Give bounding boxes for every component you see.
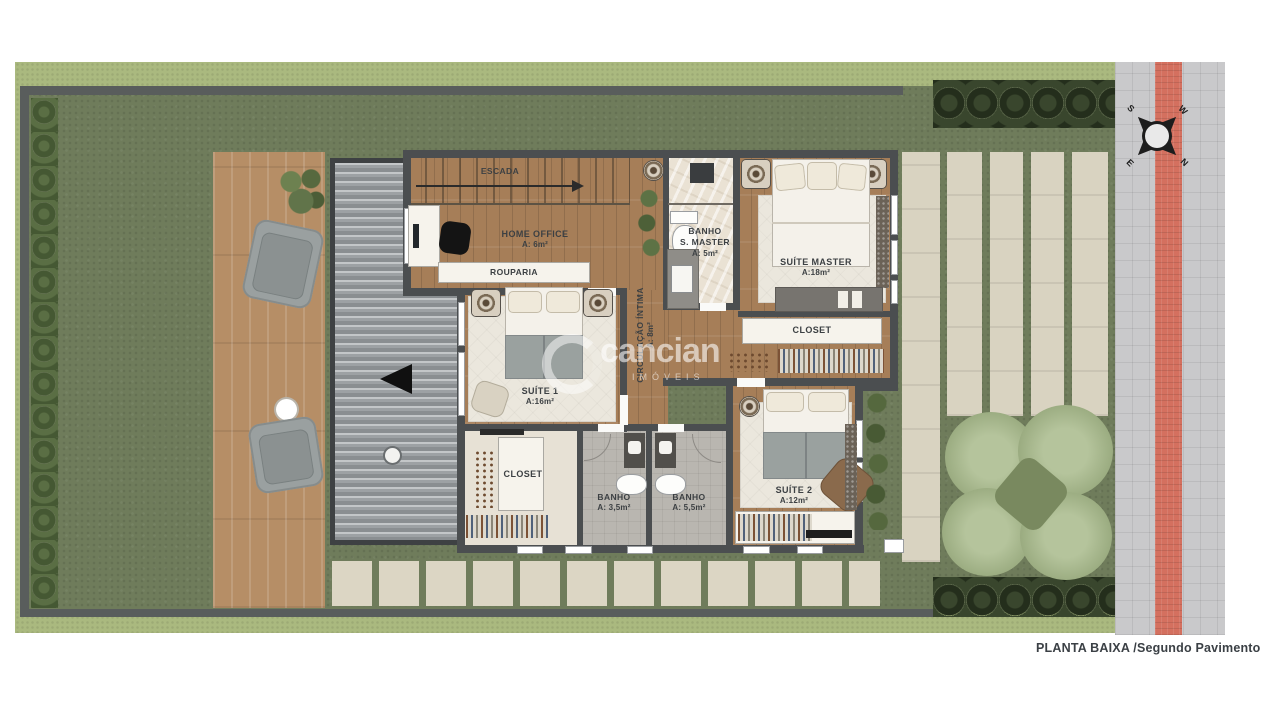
window-suite2-a	[856, 420, 863, 458]
window-suiteM-a	[891, 195, 898, 235]
banhoM-sink	[672, 266, 692, 292]
banho-1-name: BANHO	[578, 492, 650, 503]
home-office-area: A: 6m²	[485, 240, 585, 251]
suite2-tv-console	[806, 530, 852, 538]
banhoM-toilet-tank	[671, 212, 697, 223]
stairs	[410, 157, 630, 205]
suiteM-bed-foldline	[772, 222, 870, 224]
label-suite-2: SUÍTE 2 A:12m²	[744, 484, 844, 507]
label-suite-master: SUÍTE MASTER A:18m²	[766, 256, 866, 279]
window-suite1-a	[458, 302, 465, 346]
left-plant-hedge	[31, 98, 58, 608]
suite1-pillow-1	[508, 291, 542, 313]
wall-banho1-left	[577, 424, 583, 546]
wall-closetM-top	[738, 311, 898, 317]
suiteM-dresser-shirt-1	[838, 291, 848, 308]
banho1-sink	[628, 441, 641, 454]
door-closet-1	[620, 395, 628, 425]
office-chair	[438, 220, 472, 256]
corridor-plants	[638, 188, 660, 258]
suiteM-pillow-3	[837, 163, 868, 192]
label-closet-master: CLOSET	[762, 324, 862, 336]
site-wall-top	[20, 86, 903, 95]
paver-strip-1	[902, 152, 940, 562]
shrub-row-top	[933, 80, 1125, 128]
wall-left-step	[403, 288, 465, 296]
banho-master-area: A: 5m²	[668, 249, 742, 260]
watermark: cancian IMÓVEIS	[520, 322, 760, 388]
door-banho-master	[700, 303, 726, 311]
shrub-row-bottom	[933, 577, 1121, 617]
deck-armchair-bottom	[247, 415, 325, 495]
wall-top	[403, 150, 898, 158]
door-banho-2	[658, 424, 684, 432]
suite1-pillow-2	[546, 291, 580, 313]
paver-walkway-bottom	[332, 561, 880, 606]
paver-strip-5	[1072, 152, 1108, 416]
suite-master-area: A:18m²	[766, 268, 866, 279]
site-wall-left	[20, 86, 29, 617]
banho-2-area: A: 5,5m²	[652, 503, 726, 514]
closet1-shelf-bar	[480, 429, 524, 435]
suiteM-dresser	[776, 288, 882, 311]
suiteM-pillow-1	[774, 163, 807, 192]
ceiling-fixture-hall	[644, 161, 663, 180]
window-suiteM-b	[891, 240, 898, 275]
watermark-logo-icon	[542, 334, 602, 394]
roof-arrow-icon	[380, 364, 412, 394]
home-office-name: HOME OFFICE	[485, 228, 585, 240]
suiteM-curtain	[876, 196, 889, 288]
suite2-blanket-seam	[805, 432, 807, 479]
site-wall-bottom	[20, 609, 935, 617]
suiteM-nightstand-left	[742, 160, 770, 188]
door-banho-1	[598, 424, 624, 432]
banhoM-shower-head	[690, 163, 714, 183]
suite-1-area: A:16m²	[490, 397, 590, 408]
wall-suite2-left	[726, 383, 733, 553]
stairs-arrow-icon	[572, 180, 584, 192]
closet-1-name: CLOSET	[473, 468, 573, 480]
label-banho-1: BANHO A: 3,5m²	[578, 492, 650, 514]
window-suiteM-c	[891, 280, 898, 304]
office-monitor	[413, 224, 419, 248]
suiteM-dresser-shirt-2	[852, 291, 862, 308]
suite-2-name: SUÍTE 2	[744, 484, 844, 496]
ac-unit	[885, 540, 903, 552]
label-rouparia: ROUPARIA	[464, 267, 564, 278]
label-escada: ESCADA	[455, 166, 545, 177]
paver-strip-4	[1031, 152, 1064, 416]
window-suite1-b	[458, 352, 465, 416]
closet1-hanging-clothes	[466, 515, 548, 538]
banhoM-shower-divider	[668, 203, 733, 205]
deck-plant	[276, 162, 326, 218]
closet-master-name: CLOSET	[762, 324, 862, 336]
floor-plan-canvas: N S W E	[0, 0, 1280, 720]
stairs-direction-line	[416, 185, 574, 187]
escada-name: ESCADA	[455, 166, 545, 177]
window-bottom-5	[797, 546, 823, 554]
banho-master-name: BANHO	[668, 226, 742, 237]
window-bottom-4	[743, 546, 770, 554]
suite2-ceiling-fixture	[740, 397, 759, 416]
window-bottom-2	[565, 546, 592, 554]
suite1-nightstand-right	[584, 290, 612, 316]
closetM-hanging-clothes	[778, 349, 884, 373]
suite2-hanging-clothes	[738, 514, 812, 541]
deck-side-table	[276, 399, 297, 420]
window-bottom-1	[517, 546, 543, 554]
compass-rose: N S W E	[1116, 95, 1198, 177]
suiteM-pillow-2	[807, 162, 837, 190]
label-closet-1: CLOSET	[473, 468, 573, 480]
suite1-nightstand-left	[472, 290, 500, 316]
window-bottom-3	[627, 546, 653, 554]
suite2-pillow-1	[766, 392, 804, 412]
watermark-brand: cancian	[600, 332, 720, 371]
paver-strip-3	[990, 152, 1023, 416]
suite-master-name: SUÍTE MASTER	[766, 256, 866, 268]
banho2-sink	[659, 441, 672, 454]
label-banho-2: BANHO A: 5,5m²	[652, 492, 726, 514]
suite2-pillow-2	[808, 392, 846, 412]
banho-1-area: A: 3,5m²	[578, 503, 650, 514]
banho-2-name: BANHO	[652, 492, 726, 503]
suite-2-area: A:12m²	[744, 496, 844, 507]
suite2-blinds	[845, 424, 857, 510]
roof-drain	[385, 448, 400, 463]
label-home-office: HOME OFFICE A: 6m²	[485, 228, 585, 251]
suite2-outside-plants	[864, 392, 890, 530]
label-banho-master: BANHO S. MASTER A: 5m²	[668, 226, 742, 260]
watermark-tagline: IMÓVEIS	[632, 372, 705, 382]
rouparia-name: ROUPARIA	[464, 267, 564, 278]
banho-master-name2: S. MASTER	[668, 237, 742, 248]
plan-caption: PLANTA BAIXA /Segundo Pavimento	[1036, 641, 1261, 655]
paver-strip-2	[947, 152, 982, 416]
